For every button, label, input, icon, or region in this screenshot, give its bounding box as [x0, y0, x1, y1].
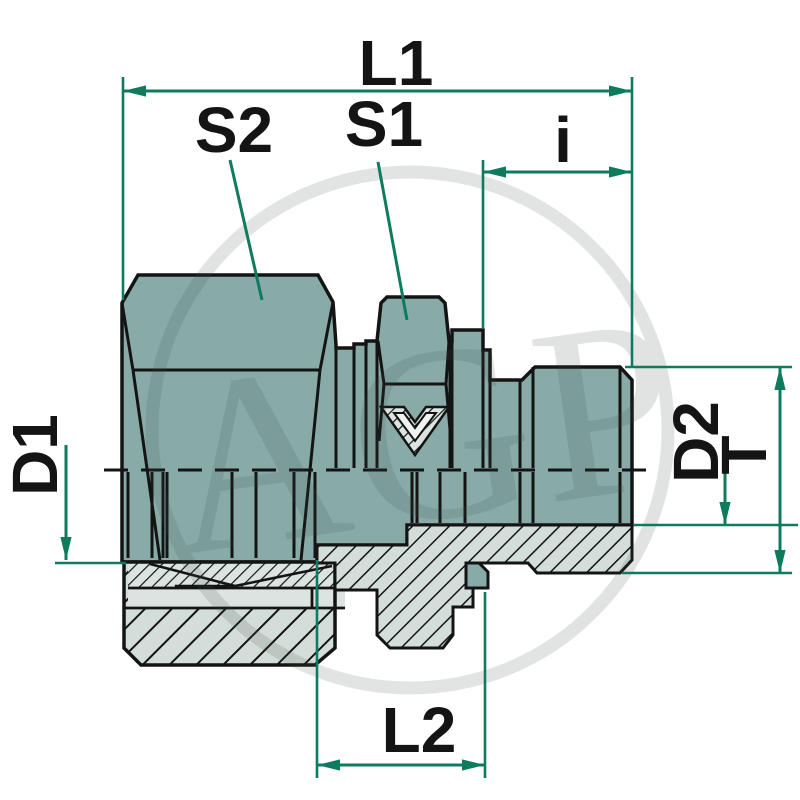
d2-arrow-top: [774, 367, 785, 390]
l2-arrow-left: [317, 759, 340, 770]
i-arrow-left: [483, 166, 506, 177]
i-arrow-right: [609, 166, 632, 177]
s1-label: S1: [345, 88, 423, 160]
t-label: T: [708, 435, 780, 474]
callout-s1: S1: [345, 88, 423, 320]
d1-label: D1: [0, 414, 71, 496]
dimension-d1: D1: [0, 414, 126, 563]
fitting-dimension-diagram: AGP L1 i S2 S1: [0, 0, 800, 800]
l1-arrow-right: [609, 85, 632, 96]
d2-arrow-bottom: [774, 550, 785, 573]
l1-arrow-left: [123, 85, 146, 96]
i-label: i: [554, 104, 572, 176]
l2-arrow-right: [462, 759, 485, 770]
s2-label: S2: [195, 94, 273, 166]
d1-arrow: [60, 537, 71, 560]
t-arrow: [719, 502, 730, 525]
l2-label: L2: [382, 694, 457, 766]
